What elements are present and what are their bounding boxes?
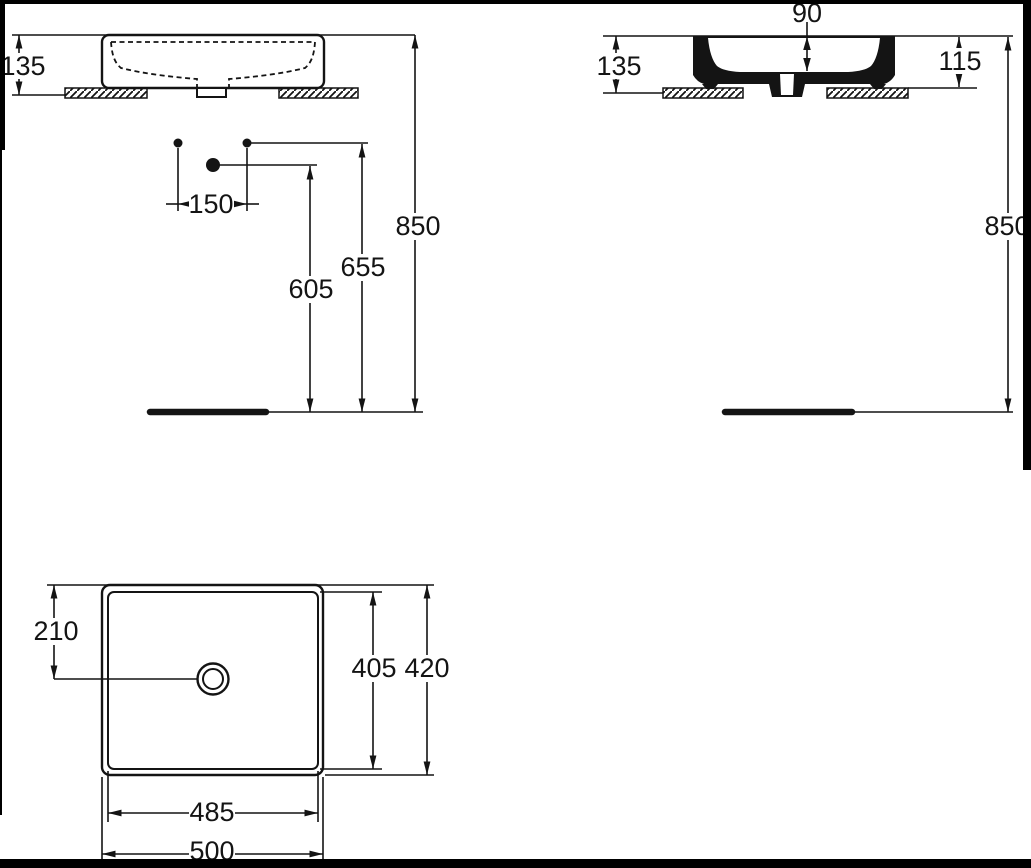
dimension-inner-width: 485 (108, 771, 318, 827)
frame-left-upper (0, 0, 5, 150)
dim-label-485: 485 (189, 797, 234, 827)
countertop-hatch-left (663, 88, 743, 98)
dimension-inner-depth: 405 (320, 592, 397, 769)
drain-outlet-front (197, 88, 226, 97)
technical-drawing-page: 135 150 605 (0, 0, 1031, 868)
bowl-interior (708, 38, 880, 72)
dimension-basin-height: 135 (0, 35, 65, 95)
drain-channel (780, 74, 794, 95)
basin-dimension-drawing: 135 150 605 (0, 0, 1031, 868)
countertop-hatch-right (827, 88, 908, 98)
dim-label-405: 405 (351, 653, 396, 683)
dim-label-850: 850 (395, 211, 440, 241)
side-section-view: 90 135 115 850 (596, 0, 1029, 412)
frame-top (0, 0, 1031, 4)
dim-label-850: 850 (984, 211, 1029, 241)
plan-view: 210 405 420 485 (33, 585, 450, 866)
dim-label-135: 135 (0, 51, 45, 81)
dimension-waste-height: 605 (288, 166, 333, 412)
dim-label-115: 115 (938, 46, 981, 76)
supply-point-left-dot (174, 139, 183, 148)
dim-label-655: 655 (340, 252, 385, 282)
dim-label-605: 605 (288, 274, 333, 304)
countertop-hatch-left (65, 88, 147, 98)
basin-outline (102, 35, 324, 88)
frame-bottom (0, 859, 1031, 868)
dim-label-90: 90 (792, 0, 822, 28)
dim-label-135: 135 (596, 51, 641, 81)
countertop-hatch-right (279, 88, 358, 98)
dim-label-420: 420 (404, 653, 449, 683)
frame-right (1023, 0, 1031, 470)
dim-label-210: 210 (33, 616, 78, 646)
dim-label-150: 150 (188, 189, 233, 219)
connection-points (174, 139, 252, 173)
dimension-rim-height: 850 (395, 35, 442, 412)
dimension-supply-height: 655 (340, 144, 385, 412)
dimension-basin-height: 135 (596, 36, 663, 93)
dimension-height-above-counter: 115 (908, 37, 983, 88)
dimension-rim-height: 850 (984, 37, 1029, 412)
frame-left-lower (0, 150, 2, 815)
front-elevation-view: 135 150 605 (0, 35, 442, 412)
